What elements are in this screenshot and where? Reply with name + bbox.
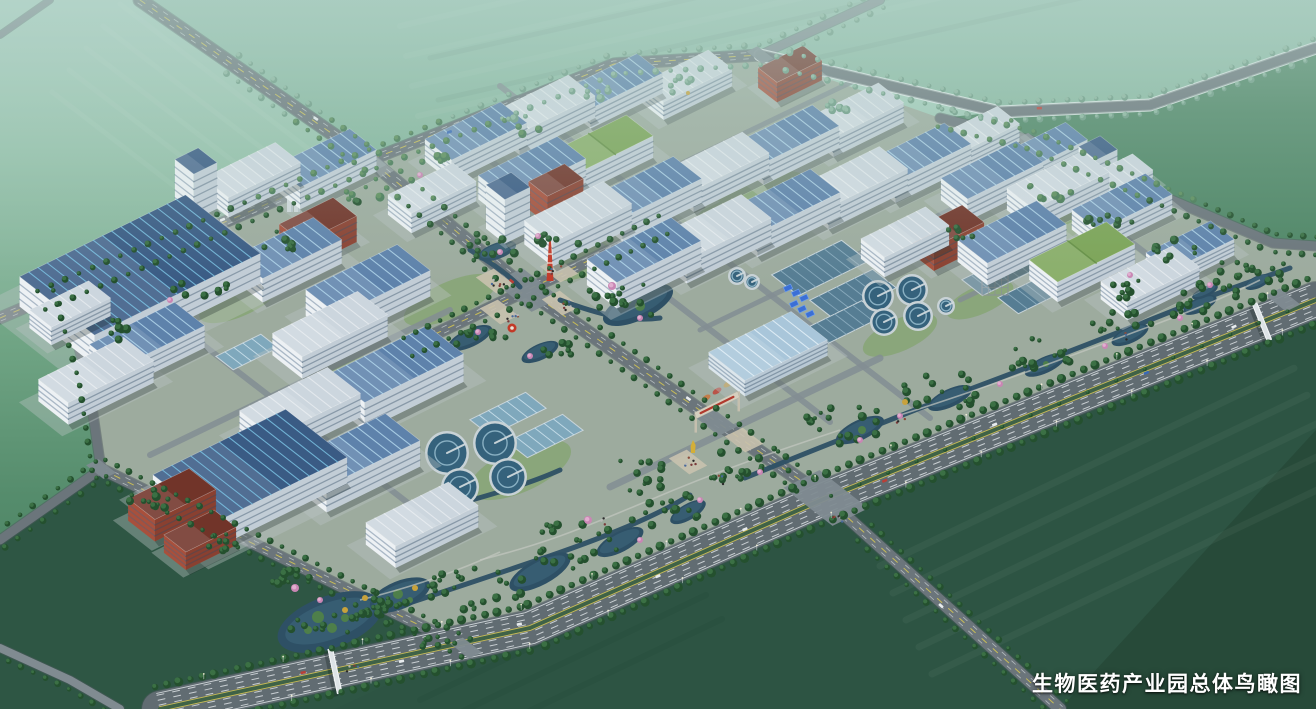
aerial-rendering-figure: 生物医药产业园总体鸟瞰图 (0, 0, 1316, 709)
scene-svg (0, 0, 1316, 709)
haze-overlay (0, 0, 1316, 709)
caption-text: 生物医药产业园总体鸟瞰图 (1032, 668, 1302, 698)
